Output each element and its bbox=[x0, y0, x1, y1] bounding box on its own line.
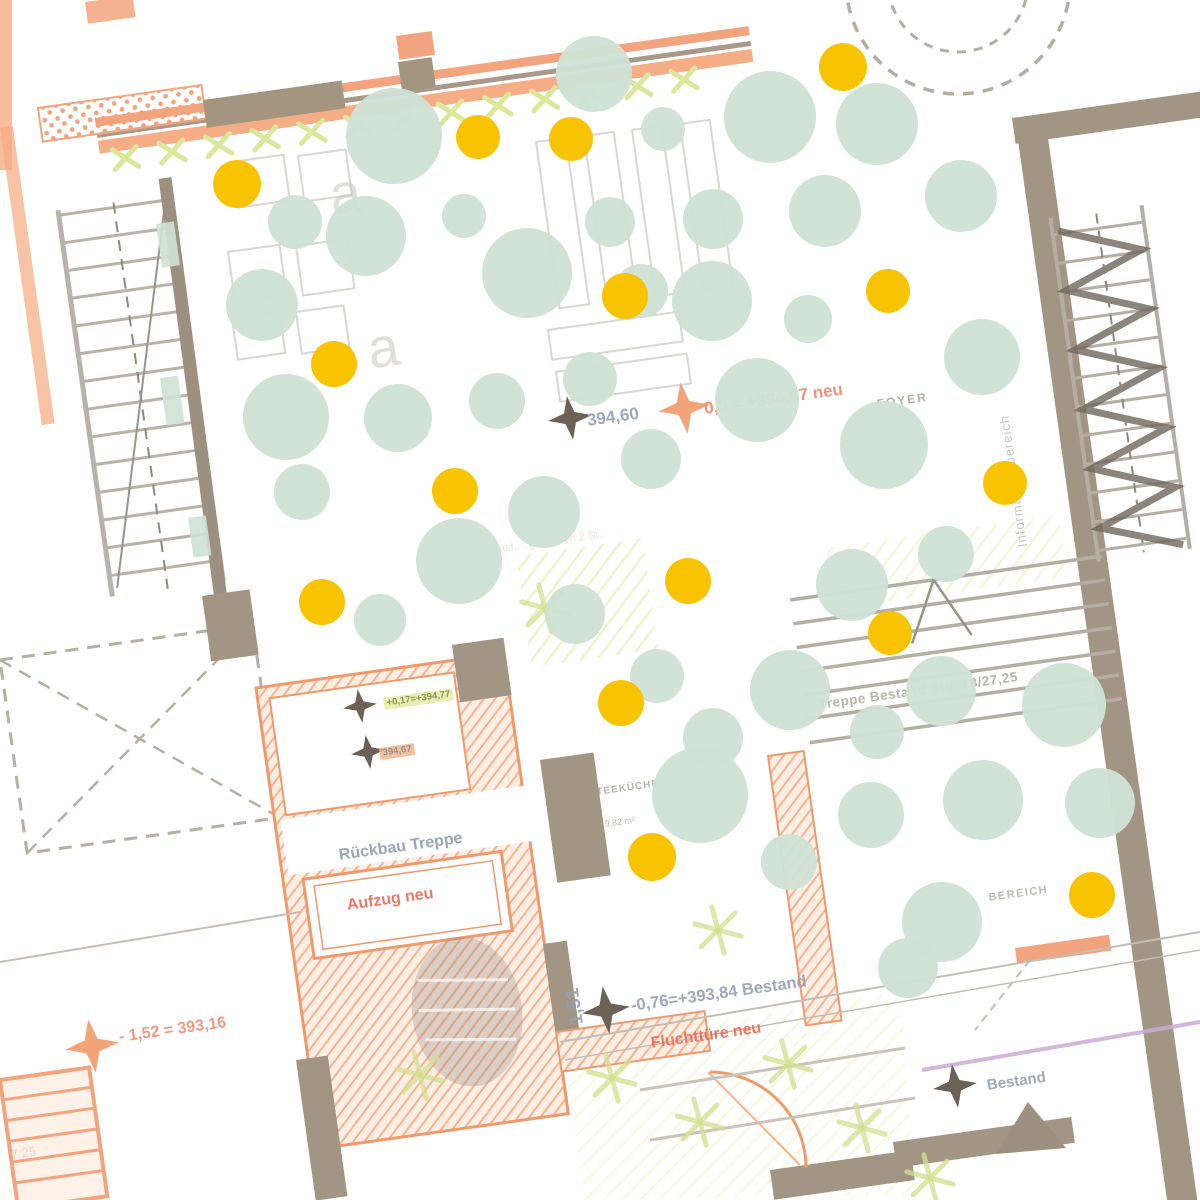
orange-hatch-strip bbox=[768, 751, 842, 1025]
bottom-left-stair bbox=[0, 1067, 107, 1200]
plant-glyph bbox=[695, 907, 741, 953]
star-marker bbox=[62, 1016, 123, 1077]
top-right-wall bbox=[1012, 91, 1200, 144]
floorplan-screenshot: 394,600,0 = +394,67 neuFOYERInformations… bbox=[0, 0, 1200, 1200]
canopy-dashed-rect bbox=[0, 625, 280, 854]
furniture-outlines bbox=[228, 120, 733, 402]
top-left-walls bbox=[0, 0, 436, 425]
top-right-dashed-arcs bbox=[846, 0, 1070, 94]
floorplan-drawing bbox=[0, 0, 1200, 1200]
right-wall bbox=[1018, 136, 1197, 1200]
